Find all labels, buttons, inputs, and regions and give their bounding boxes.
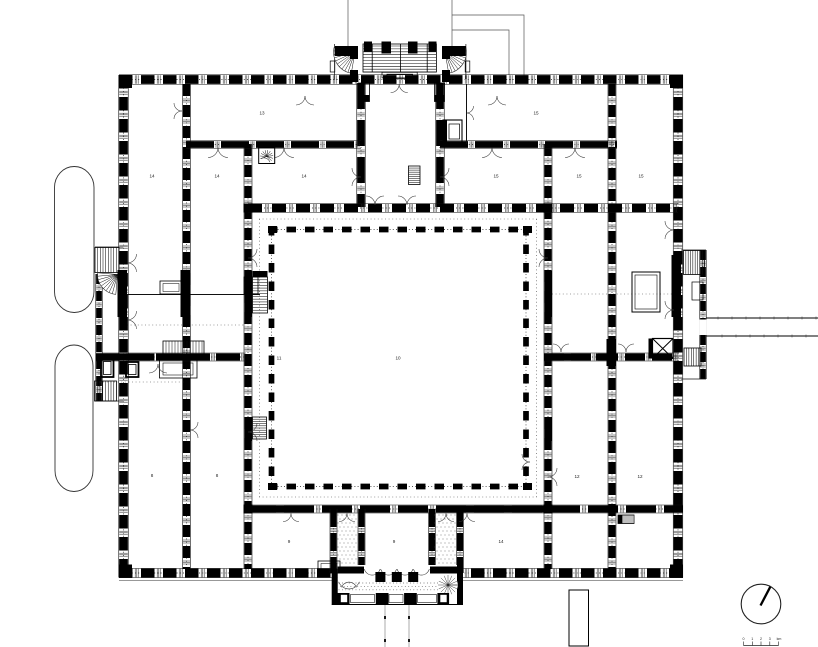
svg-text:km: km: [777, 637, 782, 641]
svg-text:14: 14: [498, 539, 504, 544]
svg-text:9: 9: [288, 539, 291, 544]
svg-text:8: 8: [216, 473, 219, 478]
svg-text:0: 0: [743, 637, 745, 641]
svg-text:9: 9: [393, 539, 396, 544]
svg-text:13: 13: [259, 111, 265, 116]
svg-text:15: 15: [638, 174, 644, 179]
svg-text:8: 8: [151, 473, 154, 478]
svg-text:15: 15: [493, 174, 499, 179]
svg-text:1: 1: [751, 637, 753, 641]
svg-text:3: 3: [769, 637, 771, 641]
svg-text:12: 12: [637, 474, 643, 479]
svg-text:11: 11: [277, 356, 282, 361]
svg-text:2: 2: [760, 637, 762, 641]
svg-text:14: 14: [149, 174, 155, 179]
svg-text:14: 14: [301, 174, 307, 179]
svg-text:10: 10: [395, 356, 401, 361]
svg-text:15: 15: [533, 111, 539, 116]
svg-text:12: 12: [574, 474, 580, 479]
svg-text:14: 14: [214, 174, 220, 179]
svg-text:15: 15: [576, 174, 582, 179]
